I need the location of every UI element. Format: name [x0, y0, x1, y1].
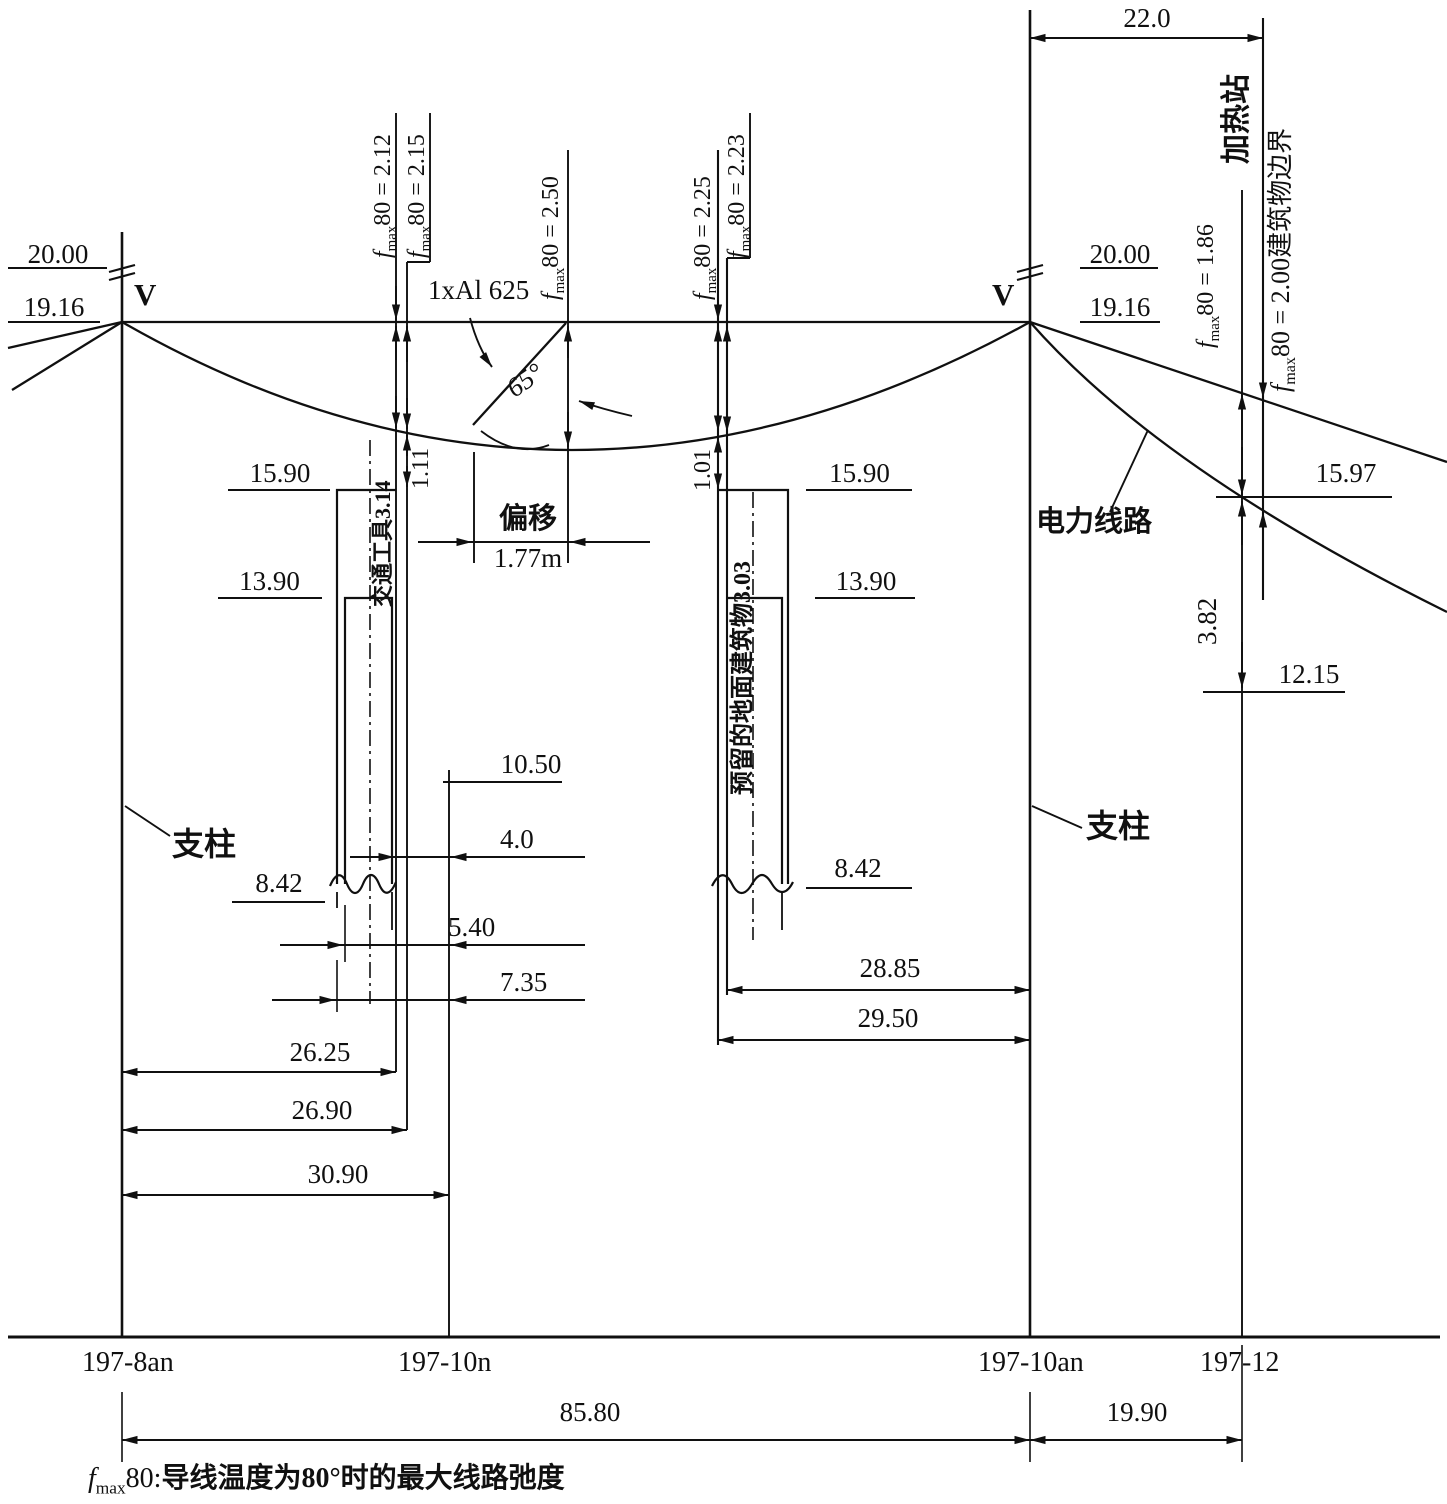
- conductor-type-label: 1xAl 625: [428, 276, 529, 304]
- dimension-29.50: 29.50: [828, 1004, 948, 1032]
- pole-id-197-10an: 197-10an: [978, 1348, 1084, 1377]
- sag-label-1.86: fmax80 = 1.86: [1194, 224, 1220, 348]
- clearance-1.01: 1.01: [691, 449, 717, 491]
- dimension-19.90: 19.90: [1082, 1398, 1192, 1426]
- elevation-19.16-left: 19.16: [10, 293, 98, 321]
- footnote: fmax80:导线温度为80°时的最大线路弛度: [88, 1456, 565, 1499]
- dimension-5.40: 5.40: [448, 913, 495, 941]
- elevation-8.42-left: 8.42: [238, 869, 320, 897]
- pole-id-197-10n: 197-10n: [398, 1348, 491, 1377]
- elevation-19.16-right: 19.16: [1082, 293, 1158, 321]
- support-label-left: 支柱: [172, 828, 236, 862]
- sag-label-2.50: fmax80 = 2.50: [539, 176, 565, 300]
- break-marks: [109, 265, 1043, 280]
- elevation-13.90-left: 13.90: [222, 567, 317, 595]
- offset-label: 偏移: [492, 504, 564, 534]
- offset-value: 1.77m: [484, 544, 572, 572]
- elevation-15.97: 15.97: [1302, 459, 1390, 487]
- dimension-26.25: 26.25: [260, 1038, 380, 1066]
- pole-id-197-8an: 197-8an: [82, 1348, 174, 1377]
- elevation-underlines: [8, 268, 1392, 902]
- power-line-label: 电力线路: [1036, 507, 1152, 537]
- elevation-15.90-left: 15.90: [235, 459, 325, 487]
- elevation-13.90-right: 13.90: [820, 567, 912, 595]
- elevation-20.00-left: 20.00: [12, 240, 104, 268]
- overhead-line-profile-diagram: 20.00 19.16 V V 20.00 19.16 22.0 1xAl 62…: [0, 0, 1447, 1504]
- reserved-building-label: 预留的地面建筑物3.03: [731, 561, 757, 795]
- dimension-85.80: 85.80: [535, 1398, 645, 1426]
- dimension-26.90: 26.90: [262, 1096, 382, 1124]
- vehicle-clearance-label: 交通工具3.14: [372, 480, 398, 607]
- dimension-4.0: 4.0: [500, 825, 534, 853]
- dimension-30.90: 30.90: [278, 1160, 398, 1188]
- dimension-3.82: 3.82: [1194, 598, 1220, 645]
- dimension-22.0: 22.0: [1090, 4, 1204, 32]
- heating-station-label: 加热站: [1222, 74, 1248, 164]
- sag-label-2.15: fmax80 = 2.15: [405, 134, 431, 258]
- clearance-1.11: 1.11: [409, 448, 435, 489]
- sag-label-2.12: fmax80 = 2.12: [371, 134, 397, 258]
- sag-label-2.25: fmax80 = 2.25: [691, 176, 717, 300]
- v-mark-right: V: [992, 279, 1014, 312]
- support-label-right: 支柱: [1086, 810, 1150, 844]
- elevation-15.90-right: 15.90: [812, 459, 907, 487]
- pole-id-197-12: 197-12: [1200, 1348, 1279, 1377]
- elevation-12.15: 12.15: [1268, 660, 1350, 688]
- elevation-20.00-right: 20.00: [1084, 240, 1156, 268]
- elevation-8.42-right: 8.42: [812, 854, 904, 882]
- sag-label-2.23: fmax80 = 2.23: [725, 134, 751, 258]
- dimension-28.85: 28.85: [830, 954, 950, 982]
- v-mark-left: V: [134, 279, 156, 312]
- dimension-7.35: 7.35: [500, 968, 547, 996]
- elevation-10.50: 10.50: [492, 750, 570, 778]
- building-boundary-label: fmax80 = 2.00建筑物边界: [1268, 128, 1294, 392]
